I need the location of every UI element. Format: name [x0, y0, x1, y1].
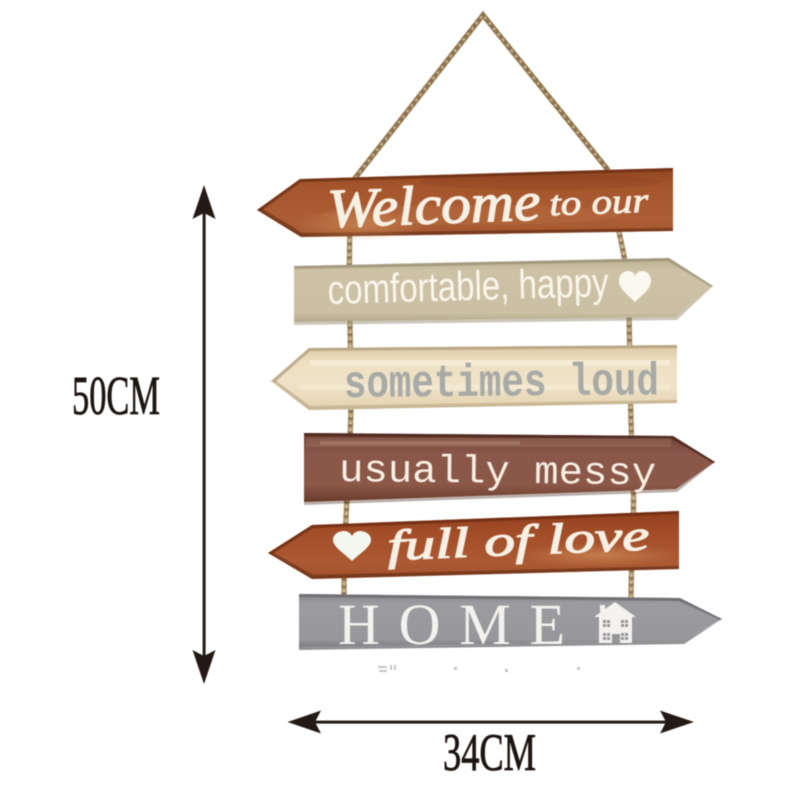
svg-text:to our: to our	[549, 181, 650, 223]
svg-text:Welcome: Welcome	[326, 171, 541, 239]
svg-text:34CM: 34CM	[443, 724, 536, 782]
svg-text:usually messy: usually messy	[339, 449, 656, 496]
svg-text:50CM: 50CM	[72, 365, 160, 426]
svg-text:sometimes loud: sometimes loud	[344, 356, 659, 411]
svg-text:comfortable, happy: comfortable, happy	[327, 259, 610, 313]
